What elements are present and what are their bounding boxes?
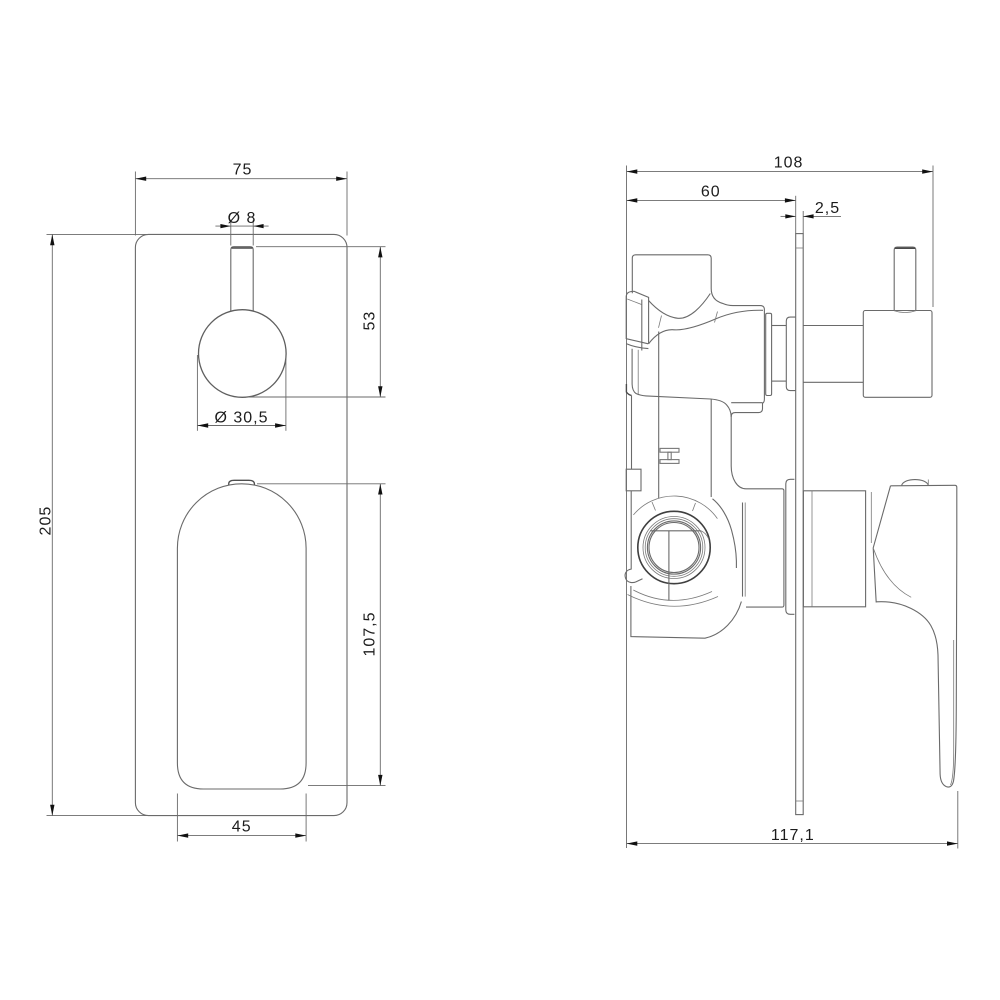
svg-text:45: 45 <box>232 819 252 836</box>
svg-text:60: 60 <box>701 183 721 200</box>
svg-text:53: 53 <box>361 311 378 331</box>
svg-text:2,5: 2,5 <box>815 200 840 217</box>
svg-text:107,5: 107,5 <box>361 611 378 656</box>
svg-text:205: 205 <box>38 506 55 536</box>
svg-text:Ø 30,5: Ø 30,5 <box>214 409 268 426</box>
svg-text:108: 108 <box>774 155 804 172</box>
svg-text:75: 75 <box>233 162 253 179</box>
svg-text:117,1: 117,1 <box>771 827 815 844</box>
svg-text:Ø 8: Ø 8 <box>228 210 257 227</box>
